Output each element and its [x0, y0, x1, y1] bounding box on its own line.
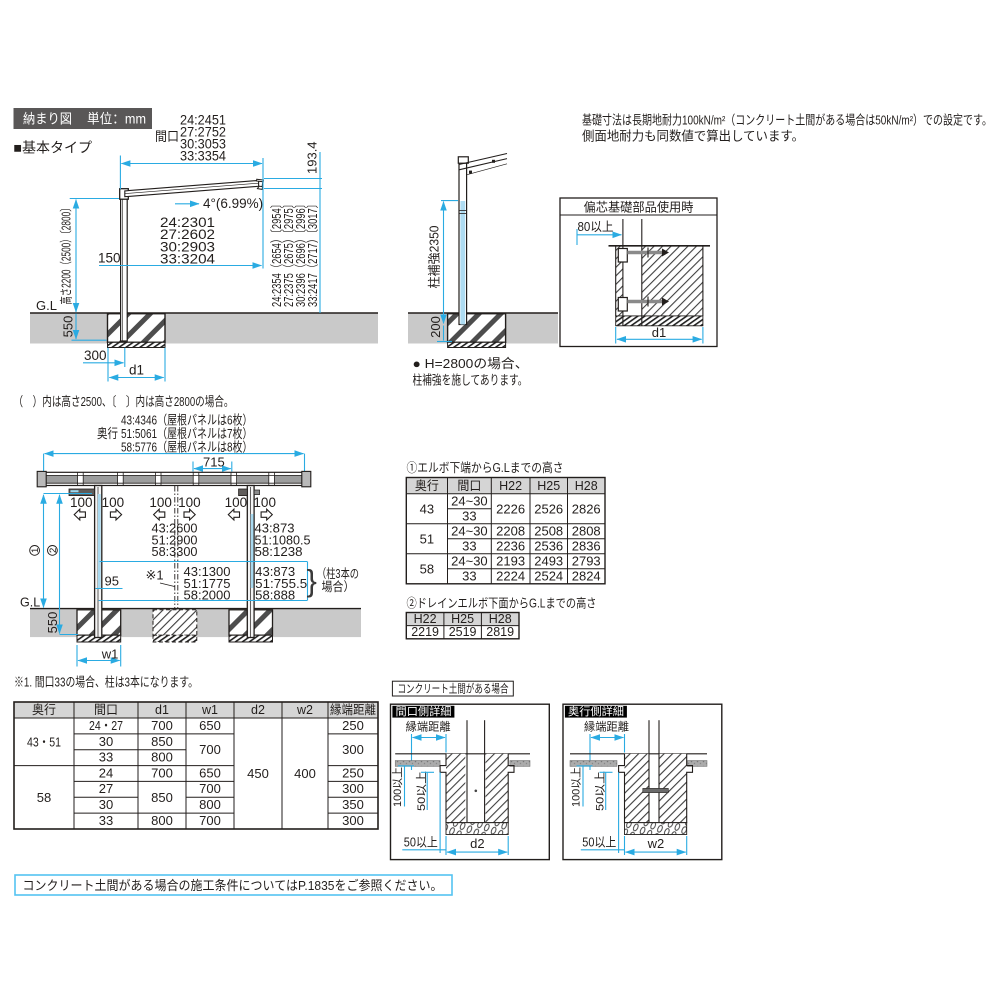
- svg-text:2536: 2536: [534, 539, 563, 554]
- svg-text:58:3300: 58:3300: [152, 544, 198, 559]
- svg-text:（柱3本の: （柱3本の: [317, 566, 359, 581]
- svg-text:700: 700: [199, 813, 221, 828]
- svg-text:場合）: 場合）: [322, 579, 355, 594]
- svg-text:間口: 間口: [457, 479, 481, 493]
- svg-text:58:888: 58:888: [255, 588, 295, 603]
- svg-text:}: }: [307, 563, 317, 598]
- svg-text:33: 33: [99, 750, 113, 765]
- svg-text:2524: 2524: [534, 569, 563, 584]
- svg-text:奥行側詳細: 奥行側詳細: [568, 704, 624, 718]
- svg-text:850: 850: [151, 734, 173, 749]
- svg-text:H22: H22: [414, 612, 437, 626]
- svg-text:H25: H25: [451, 612, 474, 626]
- svg-text:2826: 2826: [572, 501, 601, 516]
- svg-text:w2: w2: [647, 836, 665, 851]
- svg-text:2808: 2808: [572, 524, 601, 539]
- svg-text:柱補強2350: 柱補強2350: [427, 225, 442, 288]
- svg-text:d1: d1: [155, 703, 169, 717]
- svg-text:250: 250: [342, 718, 364, 733]
- svg-text:②ドレインエルボ下面からG.Lまでの高さ: ②ドレインエルボ下面からG.Lまでの高さ: [407, 596, 597, 611]
- svg-text:33:3354: 33:3354: [180, 149, 226, 164]
- svg-text:58:2000: 58:2000: [184, 588, 231, 603]
- svg-text:2193: 2193: [496, 554, 525, 569]
- svg-text:納まり図: 納まり図: [23, 112, 72, 127]
- svg-text:300: 300: [84, 348, 107, 363]
- svg-text:24: 24: [99, 765, 113, 780]
- svg-text:d2: d2: [470, 836, 484, 851]
- svg-text:650: 650: [199, 765, 221, 780]
- svg-text:33:2417（2717）〔3017〕: 33:2417（2717）〔3017〕: [306, 199, 320, 307]
- svg-text:2824: 2824: [572, 569, 601, 584]
- svg-text:58:5776（屋根パネルは8枚）: 58:5776（屋根パネルは8枚）: [121, 440, 253, 455]
- svg-text:（ ）内は高さ2500、〔 〕内は高さ2800の場合。: （ ）内は高さ2500、〔 〕内は高さ2800の場合。: [14, 394, 234, 409]
- svg-text:24~30: 24~30: [451, 554, 488, 569]
- svg-text:柱補強を施してあります。: 柱補強を施してあります。: [413, 373, 528, 388]
- svg-text:d1: d1: [652, 325, 666, 340]
- svg-text:350: 350: [342, 797, 364, 812]
- svg-text:100: 100: [253, 495, 276, 510]
- svg-text:33:3204: 33:3204: [160, 252, 216, 267]
- svg-text:400: 400: [294, 766, 316, 781]
- svg-text:700: 700: [151, 718, 173, 733]
- svg-text:100以上: 100以上: [570, 767, 583, 807]
- svg-text:高さ2200（2500）〔2800〕: 高さ2200（2500）〔2800〕: [59, 204, 74, 305]
- svg-text:24~30: 24~30: [451, 494, 488, 509]
- svg-text:100: 100: [149, 495, 172, 510]
- svg-text:H25: H25: [537, 479, 560, 493]
- svg-text:1: 1: [30, 548, 41, 553]
- svg-text:縁端距離: 縁端距離: [406, 720, 451, 734]
- svg-text:50以上: 50以上: [415, 771, 428, 811]
- svg-text:33: 33: [99, 813, 113, 828]
- svg-text:33: 33: [462, 539, 476, 554]
- svg-text:43: 43: [420, 501, 434, 516]
- svg-text:700: 700: [199, 742, 221, 757]
- svg-text:■基本タイプ: ■基本タイプ: [14, 140, 93, 156]
- svg-text:58: 58: [37, 790, 51, 805]
- svg-text:24~30: 24~30: [451, 524, 488, 539]
- svg-text:150: 150: [98, 251, 121, 266]
- svg-text:間口側詳細: 間口側詳細: [396, 704, 452, 718]
- svg-text:2508: 2508: [534, 524, 563, 539]
- svg-text:100以上: 100以上: [391, 767, 404, 807]
- svg-text:850: 850: [151, 790, 173, 805]
- svg-text:2224: 2224: [496, 569, 525, 584]
- svg-text:300: 300: [342, 742, 364, 757]
- svg-text:250: 250: [342, 765, 364, 780]
- svg-text:2519: 2519: [449, 625, 477, 639]
- svg-text:58:1238: 58:1238: [255, 544, 303, 559]
- svg-text:コンクリート土間がある場合: コンクリート土間がある場合: [398, 681, 509, 695]
- svg-text:H22: H22: [499, 479, 522, 493]
- svg-text:100: 100: [102, 495, 125, 510]
- svg-text:奥行: 奥行: [97, 426, 118, 441]
- svg-text:コンクリート土間がある場合の施工条件についてはP.1835を: コンクリート土間がある場合の施工条件についてはP.1835をご参照ください。: [23, 878, 443, 893]
- svg-text:単位：mm: 単位：mm: [87, 112, 146, 127]
- svg-text:50以上: 50以上: [593, 771, 606, 811]
- svg-text:d2: d2: [251, 703, 265, 717]
- svg-text:※1. 間口33の場合、柱は3本になります。: ※1. 間口33の場合、柱は3本になります。: [14, 675, 198, 690]
- svg-text:200: 200: [428, 316, 443, 338]
- svg-text:2526: 2526: [534, 501, 563, 516]
- svg-text:2819: 2819: [486, 625, 514, 639]
- svg-text:30: 30: [99, 797, 113, 812]
- svg-text:24・27: 24・27: [89, 718, 123, 733]
- svg-text:2793: 2793: [572, 554, 601, 569]
- svg-text:50以上: 50以上: [404, 836, 438, 850]
- svg-text:2: 2: [48, 548, 59, 553]
- svg-text:基礎寸法は長期地耐力100kN/m²（コンクリート土間がある: 基礎寸法は長期地耐力100kN/m²（コンクリート土間がある場合は50kN/m²…: [582, 113, 992, 128]
- svg-text:H28: H28: [489, 612, 512, 626]
- svg-text:650: 650: [199, 718, 221, 733]
- svg-text:w1: w1: [101, 647, 119, 662]
- svg-text:4°(6.99%): 4°(6.99%): [203, 196, 263, 211]
- svg-text:G.L: G.L: [36, 298, 57, 313]
- svg-text:51: 51: [420, 531, 434, 546]
- svg-text:2836: 2836: [572, 539, 601, 554]
- svg-text:700: 700: [199, 781, 221, 796]
- svg-text:2226: 2226: [496, 501, 525, 516]
- svg-text:縁端距離: 縁端距離: [584, 720, 629, 734]
- svg-text:30: 30: [99, 734, 113, 749]
- svg-text:● H=2800の場合、: ● H=2800の場合、: [413, 356, 529, 371]
- svg-text:33: 33: [462, 509, 476, 524]
- svg-text:193.4: 193.4: [305, 141, 320, 174]
- svg-text:100: 100: [225, 495, 248, 510]
- svg-text:偏芯基礎部品使用時: 偏芯基礎部品使用時: [584, 200, 694, 215]
- svg-text:550: 550: [61, 316, 76, 338]
- svg-text:715: 715: [203, 455, 225, 470]
- svg-text:800: 800: [151, 750, 173, 765]
- svg-text:800: 800: [199, 797, 221, 812]
- svg-text:450: 450: [247, 766, 269, 781]
- svg-text:※1: ※1: [146, 568, 164, 583]
- svg-text:間口: 間口: [155, 129, 179, 144]
- svg-text:58: 58: [420, 561, 434, 576]
- svg-text:側面地耐力も同数値で算出しています。: 側面地耐力も同数値で算出しています。: [582, 129, 804, 144]
- svg-text:奥行: 奥行: [32, 703, 56, 717]
- svg-text:w2: w2: [296, 703, 313, 717]
- svg-text:2236: 2236: [496, 539, 525, 554]
- svg-text:縁端距離: 縁端距離: [330, 702, 376, 717]
- svg-text:800: 800: [151, 813, 173, 828]
- svg-text:①エルボ下端からG.Lまでの高さ: ①エルボ下端からG.Lまでの高さ: [407, 460, 564, 475]
- svg-text:d1: d1: [129, 363, 144, 378]
- svg-text:100: 100: [70, 495, 93, 510]
- svg-text:33: 33: [462, 569, 476, 584]
- svg-text:2208: 2208: [496, 524, 525, 539]
- svg-text:2493: 2493: [534, 554, 563, 569]
- svg-text:間口: 間口: [94, 703, 118, 717]
- svg-text:27: 27: [99, 781, 113, 796]
- svg-text:550: 550: [45, 612, 60, 634]
- svg-text:2219: 2219: [411, 625, 439, 639]
- svg-text:43・51: 43・51: [27, 734, 61, 749]
- svg-text:95: 95: [105, 574, 119, 589]
- svg-text:H28: H28: [575, 479, 598, 493]
- svg-text:50以上: 50以上: [582, 836, 616, 850]
- svg-text:G.L: G.L: [20, 596, 40, 610]
- svg-text:80以上: 80以上: [578, 220, 614, 234]
- svg-text:w1: w1: [201, 703, 218, 717]
- svg-text:700: 700: [151, 765, 173, 780]
- svg-text:奥行: 奥行: [415, 479, 439, 493]
- svg-text:100: 100: [178, 495, 201, 510]
- svg-text:300: 300: [342, 781, 364, 796]
- svg-text:300: 300: [342, 813, 364, 828]
